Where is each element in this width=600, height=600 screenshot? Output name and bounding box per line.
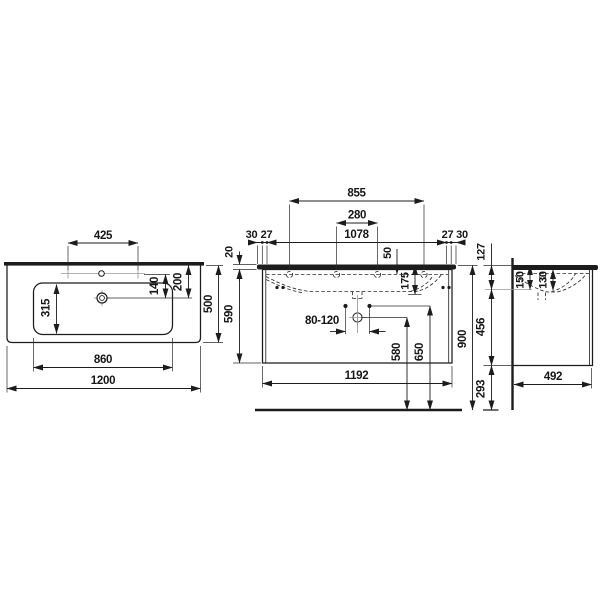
drain-hole-outer — [97, 293, 107, 303]
supply-dot-r — [367, 304, 371, 308]
dim-front-650: 650 — [414, 343, 426, 361]
dim-front-1078: 1078 — [344, 229, 369, 241]
front-washbasin-slab — [257, 265, 456, 270]
dim-top-140: 140 — [149, 277, 161, 295]
chain-dot-2 — [266, 241, 269, 244]
fixing-dot-r1 — [441, 286, 444, 289]
dim-top-500: 500 — [203, 295, 215, 313]
technical-drawing-canvas: 425 140 200 315 500 860 1200 — [0, 0, 600, 600]
dim-front-27-r: 27 — [442, 229, 454, 241]
tap-hole-center — [99, 271, 105, 277]
dim-side-293: 293 — [476, 380, 488, 398]
top-view-back-edge — [4, 262, 204, 266]
chain-dot-4 — [450, 241, 453, 244]
fixing-dot-r2 — [447, 286, 450, 289]
chain-dot-1 — [261, 241, 264, 244]
supply-dot-l — [343, 304, 347, 308]
dim-front-280: 280 — [348, 210, 366, 222]
dim-front-900: 900 — [457, 330, 469, 348]
top-view: 425 140 200 315 500 860 1200 — [4, 230, 223, 393]
dim-front-20: 20 — [224, 246, 236, 258]
dim-front-27-l: 27 — [261, 229, 273, 241]
hidden-bowl-profile-2l — [266, 280, 304, 294]
hidden-bowl-profile-2r — [410, 276, 433, 292]
dim-top-860: 860 — [94, 354, 112, 366]
dim-side-150: 150 — [515, 271, 527, 289]
dim-front-855: 855 — [347, 188, 366, 200]
dim-front-1192: 1192 — [345, 370, 369, 382]
fixing-dot-l2 — [281, 286, 284, 289]
dim-front-580: 580 — [391, 343, 403, 361]
side-hidden-drain-stub — [538, 293, 546, 301]
washbasin-dimension-drawing: 425 140 200 315 500 860 1200 — [0, 0, 600, 600]
dim-front-50: 50 — [382, 247, 394, 259]
side-hidden-bowl-2 — [551, 274, 576, 293]
side-washbasin-slab — [512, 265, 598, 270]
dim-side-130: 130 — [538, 271, 550, 289]
dim-side-127: 127 — [476, 243, 488, 261]
fixing-dot-l1 — [275, 286, 278, 289]
dim-top-tap-spacing: 425 — [94, 230, 113, 242]
dim-front-175: 175 — [400, 272, 412, 290]
chain-dot-3 — [445, 241, 448, 244]
dim-front-30-l: 30 — [246, 229, 258, 241]
dim-top-200: 200 — [173, 273, 185, 291]
dim-front-80-120: 80-120 — [305, 315, 339, 327]
dim-top-1200: 1200 — [91, 375, 115, 387]
dim-front-30-r: 30 — [456, 229, 468, 241]
front-view: 855 280 30 27 1078 27 30 20 590 — [224, 188, 478, 411]
side-view: 150 130 127 456 293 492 — [476, 243, 599, 410]
dim-side-456: 456 — [476, 318, 488, 336]
dim-top-315: 315 — [41, 298, 53, 317]
dim-front-590: 590 — [224, 305, 236, 323]
dim-side-492: 492 — [544, 371, 562, 383]
